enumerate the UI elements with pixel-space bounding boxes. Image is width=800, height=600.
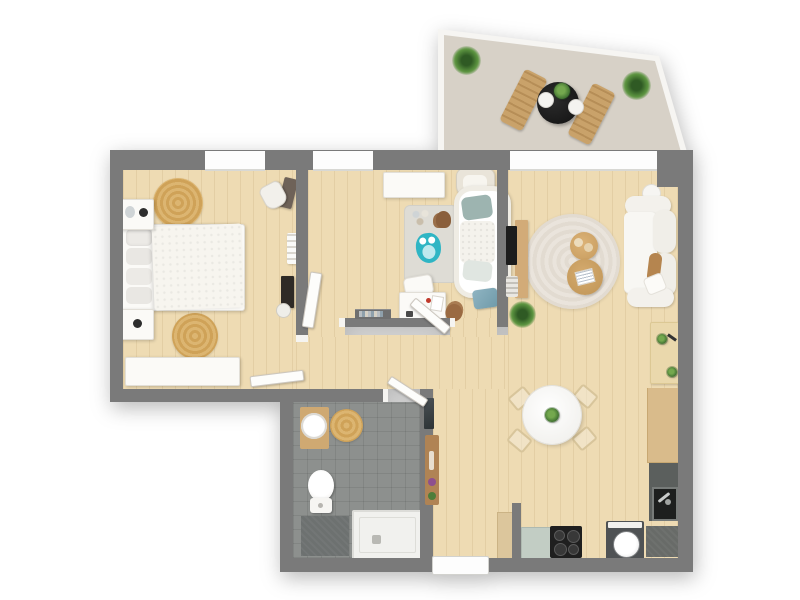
table-centerpiece-plant-icon [545,408,559,422]
side-table-plant-icon [667,367,677,377]
bedroom-rug [172,313,218,359]
table-cushion [574,238,583,247]
owl-belly [422,244,436,259]
coffee-table [570,232,598,260]
burner-icon [554,543,567,556]
right-wall [678,150,693,572]
dining-table [523,386,581,444]
shower-tray [352,510,425,562]
sink-counter [649,463,678,521]
left-wall [110,150,123,400]
crib-pillow-light [462,260,493,283]
sofa-back-cushion [653,210,676,253]
magazine-rack [506,276,518,297]
owl-eye [419,237,427,245]
side-table-plant-icon [657,334,667,344]
crib-quilt [460,221,495,263]
double-bed [122,224,245,311]
shower-inner-line [359,517,416,553]
magazine [575,268,596,286]
desk-paper [430,295,444,312]
burner-icon [554,530,565,541]
stove [550,526,582,558]
kids-dresser [383,172,445,198]
bath-rug [330,409,363,442]
wall-shelf [355,310,391,319]
door-jamb [383,389,388,402]
side-table-item [667,333,677,341]
bedroom-window [205,151,265,171]
nightstand [120,199,154,230]
plate [568,99,584,115]
toilet-bowl [308,470,334,501]
owl-eye [428,236,436,244]
coffee-table [567,259,603,295]
hallway-floor [296,335,508,389]
living-round-rug [525,214,620,309]
desk-item-dark [406,311,413,317]
burner-icon [568,544,579,555]
toilet [308,470,335,515]
bath-sink [301,413,327,439]
hall-console [425,435,439,505]
bedroom-rug [153,178,203,228]
nightstand [120,309,154,340]
teddy-bear [436,211,451,228]
terrace-plant-icon [452,46,481,75]
lamp-icon [133,319,142,328]
bedroom-bottom-wall [110,389,296,402]
sofa [622,184,678,308]
floor-plan-canvas [0,0,800,600]
washer-door-icon [613,531,640,558]
plate [538,92,554,108]
plant-icon [428,492,436,500]
crib-pillow-teal [461,194,494,221]
lamp-icon [139,208,148,217]
living-plant-icon [509,301,536,328]
storage-basket-teal [472,287,499,309]
toy-set [411,209,431,227]
bath-mat-dark [301,516,349,556]
kitchen-counter-dark [646,526,678,557]
bed-duvet [152,223,245,310]
door-jamb [450,318,455,327]
bed-pillow [126,287,152,304]
faucet-base-icon [665,499,671,505]
door-jamb [296,335,308,342]
decor-icon [125,206,135,218]
bathroom-left-wall [280,389,293,570]
flowers-icon [428,478,436,486]
kitchen-counter-wood [647,388,681,463]
entrance-door [432,556,489,575]
shower-drain-icon [372,535,381,544]
console-item [429,451,434,470]
table-plant-icon [554,83,570,99]
bed-pillow [126,268,152,285]
bathroom-top-wall [293,389,388,402]
shelf-books [359,311,383,317]
corner-block [657,168,678,187]
desk-stool [276,303,291,318]
tv [506,226,517,265]
terrace-door-window [510,151,657,171]
kids-room-window [313,151,373,171]
table-cushion [584,243,593,252]
apartment-floor-plan [0,0,800,600]
bedroom-dresser [125,357,240,386]
terrace-plant-icon [622,71,651,100]
bed-pillow [126,229,152,246]
door-jamb [339,318,345,327]
kitchen-stub-wall [512,503,521,558]
burner-icon [567,530,580,543]
flush-button-icon [318,503,323,508]
bed-pillow [126,248,152,265]
bath-vanity [300,407,329,449]
washer-top-panel [608,522,642,528]
washing-machine [606,521,644,560]
kitchen-counter-green [521,527,552,560]
